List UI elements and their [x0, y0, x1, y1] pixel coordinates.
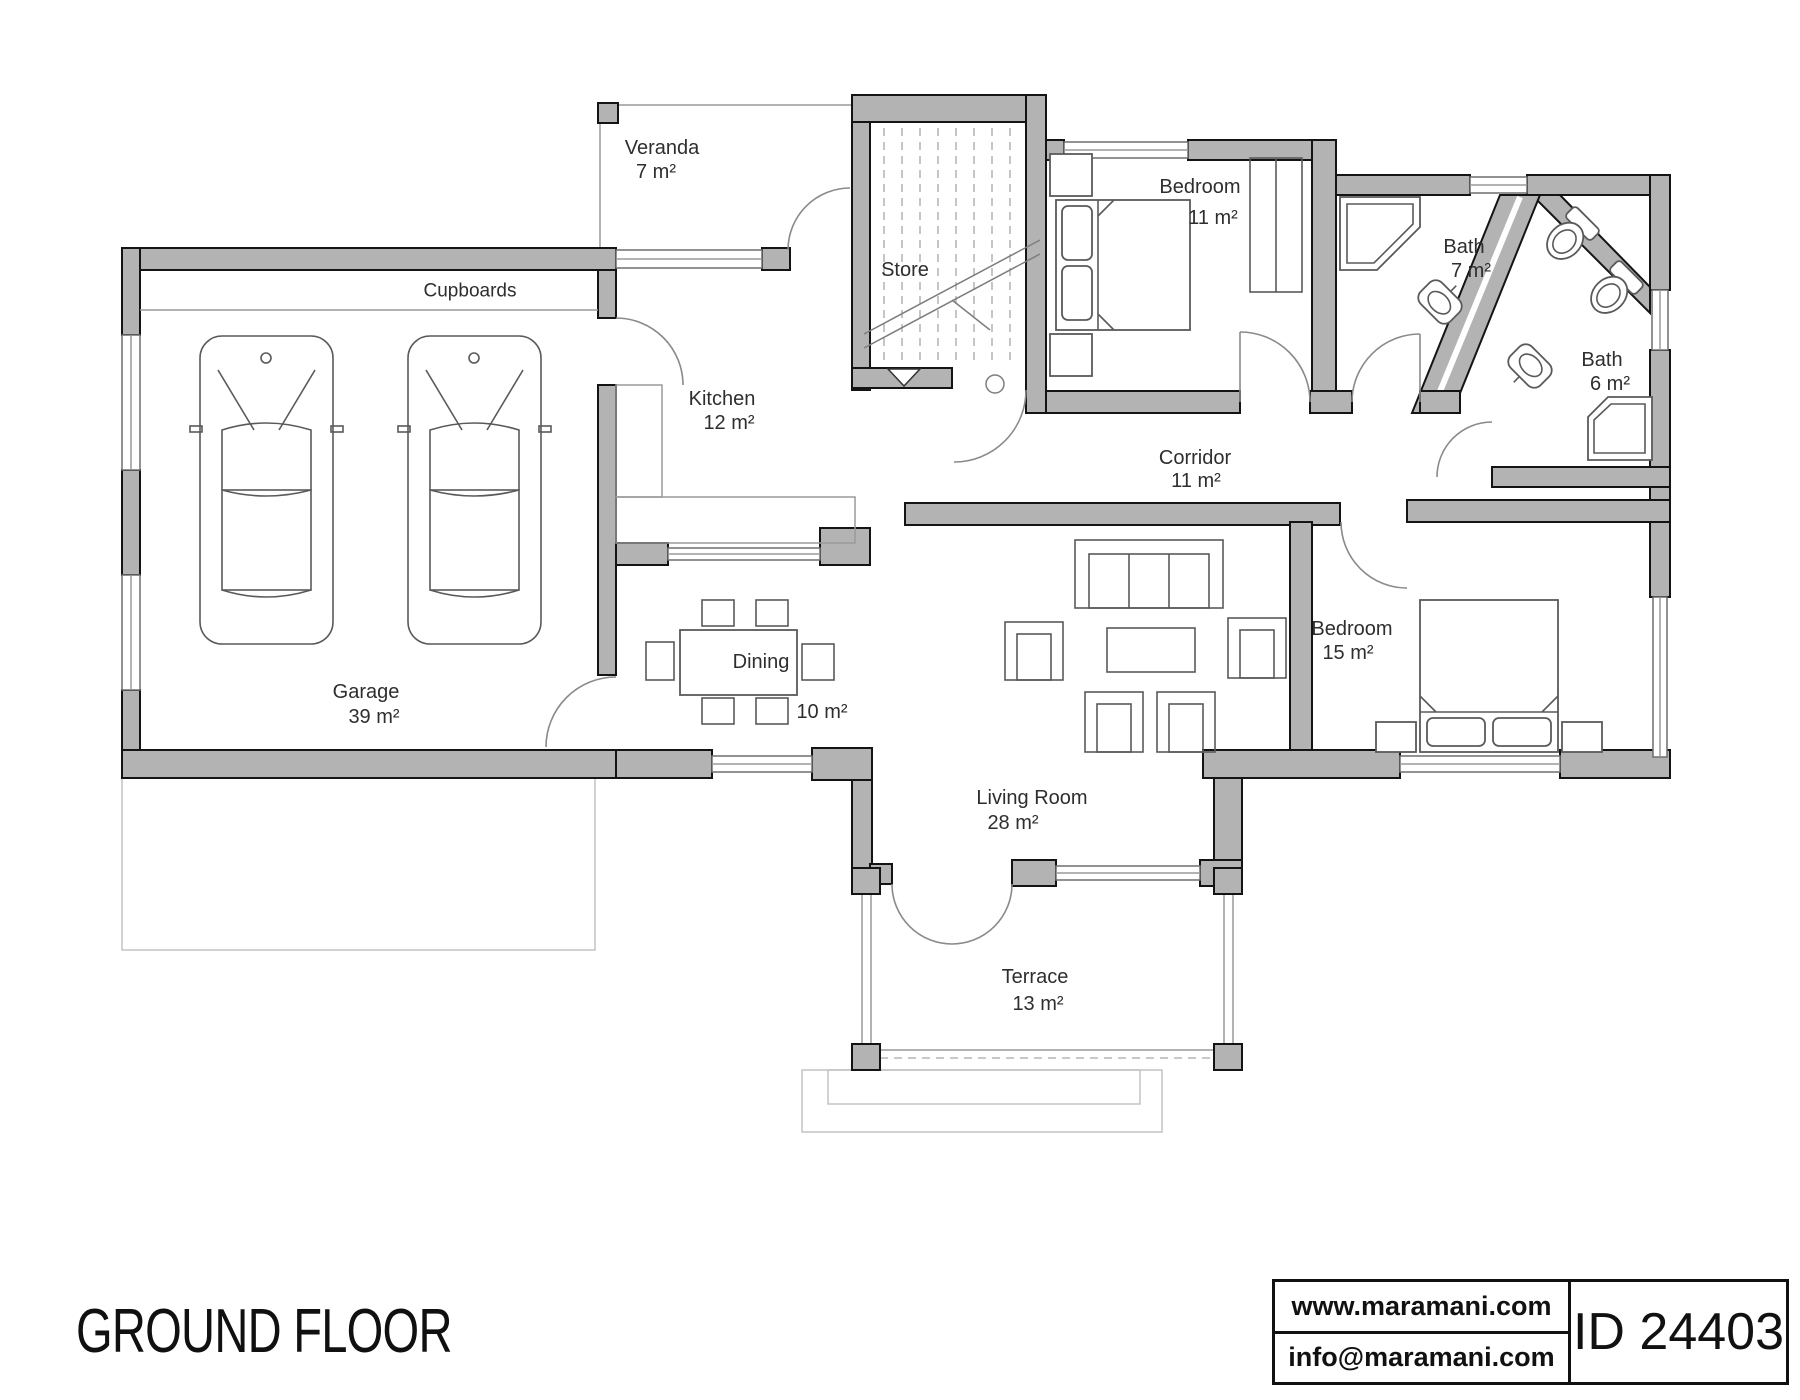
room-label-bedroom-15: Bedroom — [1311, 619, 1392, 639]
car-2 — [398, 336, 551, 644]
shower-bath-7 — [1340, 197, 1420, 270]
car-1 — [190, 336, 343, 644]
room-label-bath-7: Bath — [1443, 237, 1484, 257]
room-label-veranda: Veranda — [625, 138, 700, 158]
floor-plan-page: Veranda 7 m² Store Bedroom 11 m² Bath 7 … — [0, 0, 1800, 1400]
room-area-living-room: 28 m² — [987, 813, 1038, 833]
room-area-dining: 10 m² — [796, 702, 847, 722]
shower-bath-6 — [1588, 397, 1652, 460]
page-title: GROUND FLOOR — [76, 1296, 452, 1367]
room-area-terrace: 13 m² — [1012, 994, 1063, 1014]
living-room-set — [1005, 540, 1286, 752]
room-label-garage: Garage — [333, 682, 400, 702]
room-label-bath-6: Bath — [1581, 350, 1622, 370]
room-area-kitchen: 12 m² — [703, 413, 754, 433]
walls — [122, 95, 1670, 1070]
room-area-bath-7: 7 m² — [1451, 261, 1491, 281]
room-label-terrace: Terrace — [1002, 967, 1069, 987]
driveway-outline — [122, 778, 595, 950]
room-area-bedroom-15: 15 m² — [1322, 643, 1373, 663]
email-text: info@maramani.com — [1275, 1334, 1568, 1383]
cupboards-label: Cupboards — [424, 282, 517, 301]
terrace-steps — [802, 1070, 1162, 1132]
closet-bedroom-11 — [1250, 158, 1302, 292]
title-block: www.maramani.com info@maramani.com ID 24… — [1272, 1279, 1789, 1385]
toilet-bath-6 — [1582, 259, 1644, 321]
bed-bedroom-15 — [1376, 600, 1602, 752]
room-area-veranda: 7 m² — [636, 162, 676, 182]
contact-block: www.maramani.com info@maramani.com — [1275, 1282, 1571, 1382]
room-area-corridor: 11 m² — [1171, 471, 1221, 491]
plan-id: ID 24403 — [1571, 1282, 1786, 1382]
room-label-kitchen: Kitchen — [689, 389, 756, 409]
room-area-bath-6: 6 m² — [1590, 374, 1630, 394]
room-label-bedroom-11: Bedroom — [1159, 177, 1240, 197]
room-label-store: Store — [881, 260, 929, 280]
room-label-living-room: Living Room — [976, 788, 1087, 808]
room-area-garage: 39 m² — [348, 707, 399, 727]
toilet-bath-7 — [1538, 205, 1600, 267]
website-text: www.maramani.com — [1275, 1282, 1568, 1334]
room-area-bedroom-11: 11 m² — [1188, 208, 1238, 228]
room-label-corridor: Corridor — [1159, 448, 1231, 468]
sink-bath-6 — [1499, 341, 1556, 398]
floor-plan-drawing — [0, 0, 1800, 1260]
room-label-dining: Dining — [733, 652, 790, 672]
